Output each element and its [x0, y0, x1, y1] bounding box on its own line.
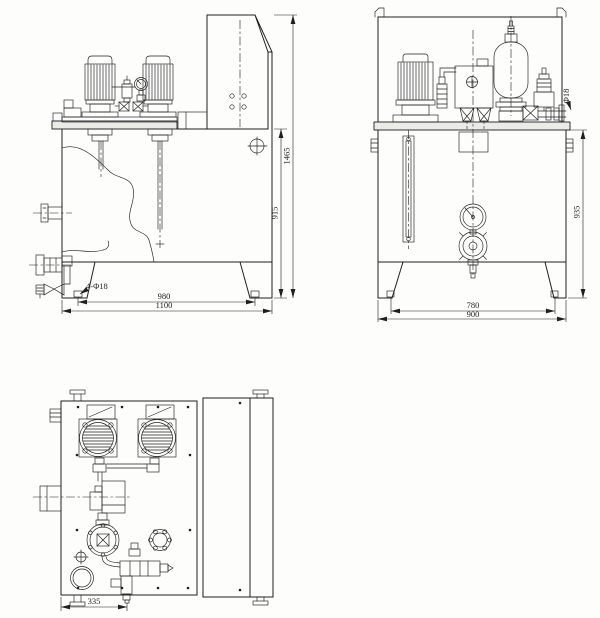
- dim-plan-valve-offset-text: 335: [88, 596, 101, 606]
- plan-lug-bottom-right: [253, 597, 268, 605]
- side-outlet-pipe: Φ18: [538, 89, 571, 121]
- dim-side-tank-height-text: 935: [572, 206, 582, 219]
- front-panel-holes: [230, 94, 246, 109]
- side-manifold: [455, 59, 493, 108]
- side-check-valve: [523, 106, 538, 120]
- front-tank-outline: [62, 129, 272, 298]
- side-wall-flange-right: [566, 139, 573, 152]
- dim-front-total-height: 1465: [274, 15, 297, 298]
- front-foot-hole-right: [251, 291, 259, 297]
- front-view: 915 1465 980 1100 4-Φ18: [29, 15, 297, 314]
- plan-side-port: [40, 486, 61, 511]
- side-relief-valve: [534, 68, 554, 111]
- plan-view: 335: [33, 390, 273, 611]
- front-foot-hole-callout: 4-Φ18: [80, 281, 108, 294]
- front-foot-hole-callout-text: 4-Φ18: [86, 281, 108, 291]
- front-motor-right: [140, 56, 176, 117]
- dim-front-total-height-text: 1465: [282, 148, 292, 165]
- plan-side-fitting-top: [50, 409, 61, 422]
- dim-plan-valve-offset: 335: [61, 596, 127, 611]
- front-relief-valve: [122, 76, 132, 102]
- plan-lug-bottom-left: [70, 595, 85, 606]
- front-break-line: [62, 147, 154, 262]
- plan-lug-top-left: [70, 390, 85, 401]
- dim-side-overall-width-text: 900: [467, 309, 480, 319]
- side-lug-left: [375, 8, 384, 17]
- front-plate-clamp: [53, 113, 62, 121]
- front-motor-left: [82, 56, 118, 117]
- front-foot-hole-left: [74, 291, 82, 297]
- front-hole-target-mark: [248, 137, 267, 155]
- front-panel-bracket: [178, 112, 207, 129]
- dim-front-tank-height-text: 915: [270, 207, 280, 220]
- plan-lug-top-right: [253, 390, 268, 398]
- side-wall-flange-left: [371, 139, 378, 152]
- side-view: Φ18 780 900: [371, 8, 587, 322]
- side-top-plate: [374, 122, 570, 130]
- front-pressure-gauge: [135, 78, 148, 102]
- side-motor: [393, 54, 438, 122]
- plan-panel: [203, 398, 273, 597]
- drawing-sheet: 915 1465 980 1100 4-Φ18: [0, 0, 600, 618]
- side-outlet-pipe-label: Φ18: [561, 89, 571, 104]
- dim-front-overall-width-text: 1100: [156, 300, 173, 310]
- front-side-port-b: [29, 255, 72, 275]
- assembly-drawing: 915 1465 980 1100 4-Φ18: [0, 0, 600, 618]
- side-level-gauge: [403, 130, 414, 249]
- front-side-port-a: [33, 204, 72, 222]
- side-filter: [437, 68, 456, 108]
- side-name-plate: [459, 132, 488, 152]
- front-suction-pipes: [88, 129, 172, 248]
- front-pump-fittings: [64, 100, 81, 117]
- side-lug-right: [557, 8, 566, 17]
- dim-side-tank-height: 935: [568, 130, 587, 298]
- front-panel: [207, 15, 272, 129]
